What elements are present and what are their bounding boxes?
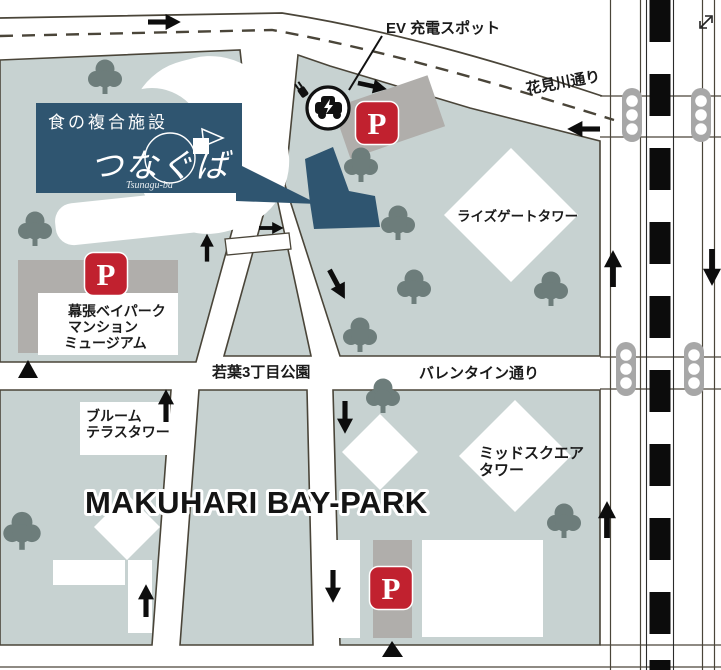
parking-icon-top: P (356, 102, 399, 145)
area-title: MAKUHARI BAY-PARK (85, 485, 428, 520)
svg-text:マンション: マンション (68, 319, 138, 335)
traffic-light-icon (616, 342, 636, 396)
parking-icon-museum: P (85, 253, 128, 296)
parking-letter: P (382, 571, 401, 606)
svg-text:ミュージアム: ミュージアム (64, 335, 147, 351)
parking-letter: P (368, 106, 387, 141)
parking-area-museum-v (18, 260, 38, 353)
traffic-light-icon (622, 88, 642, 142)
access-map: 若葉3丁目公園 バレンタイン通り 花見川通り ライズゲートタワー 幕張ベイパーク… (0, 0, 721, 670)
building-low-1 (53, 560, 125, 585)
label-wakaba-park: 若葉3丁目公園 (211, 363, 310, 381)
svg-text:ミッドスクエア: ミッドスクエア (479, 445, 584, 462)
map-canvas: 若葉3丁目公園 バレンタイン通り 花見川通り ライズゲートタワー 幕張ベイパーク… (0, 0, 721, 670)
traffic-light-icon (691, 88, 711, 142)
logo-category: 食の複合施設 (48, 113, 168, 132)
parking-icon-bottom: P (370, 567, 413, 610)
parking-letter: P (97, 257, 116, 292)
logo-romaji: Tsunagu-ba (126, 180, 173, 191)
logo-box: 食の複合施設 つなぐば Tsunagu-ba (36, 103, 242, 193)
svg-text:幕張ベイパーク: 幕張ベイパーク (67, 303, 166, 319)
label-rise-gate-tower: ライズゲートタワー (457, 208, 578, 224)
svg-text:タワー: タワー (479, 462, 524, 479)
svg-text:テラスタワー: テラスタワー (86, 424, 170, 440)
traffic-light-icon (684, 342, 704, 396)
label-valentine-street: バレンタイン通り (419, 365, 539, 382)
ev-spot-label: EV 充電スポット (386, 19, 500, 37)
svg-text:ブルーム: ブルーム (86, 408, 142, 424)
building-low-4 (422, 540, 543, 637)
